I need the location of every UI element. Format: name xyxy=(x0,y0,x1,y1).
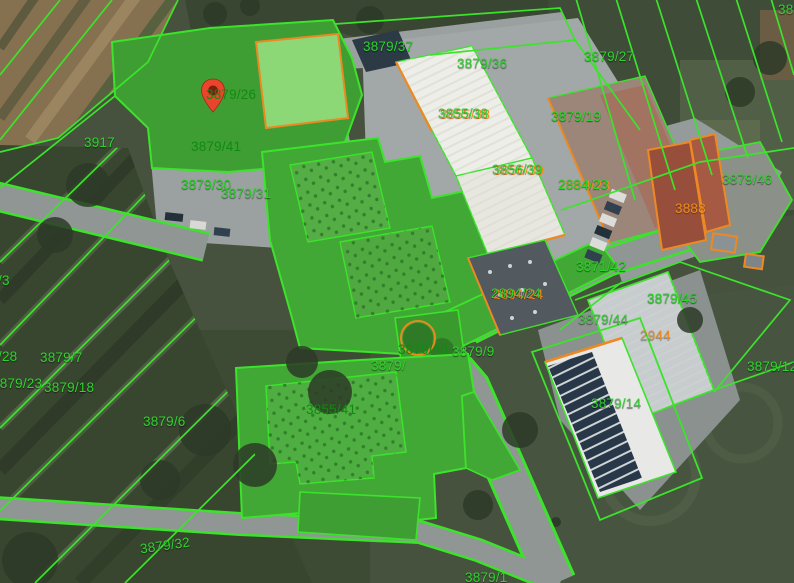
location-pin[interactable] xyxy=(200,78,226,114)
map-viewport: 3879/373879/363855/383855/383879/193879/… xyxy=(0,0,794,583)
aerial-map[interactable] xyxy=(0,0,794,583)
location-pin-hole xyxy=(208,86,218,96)
